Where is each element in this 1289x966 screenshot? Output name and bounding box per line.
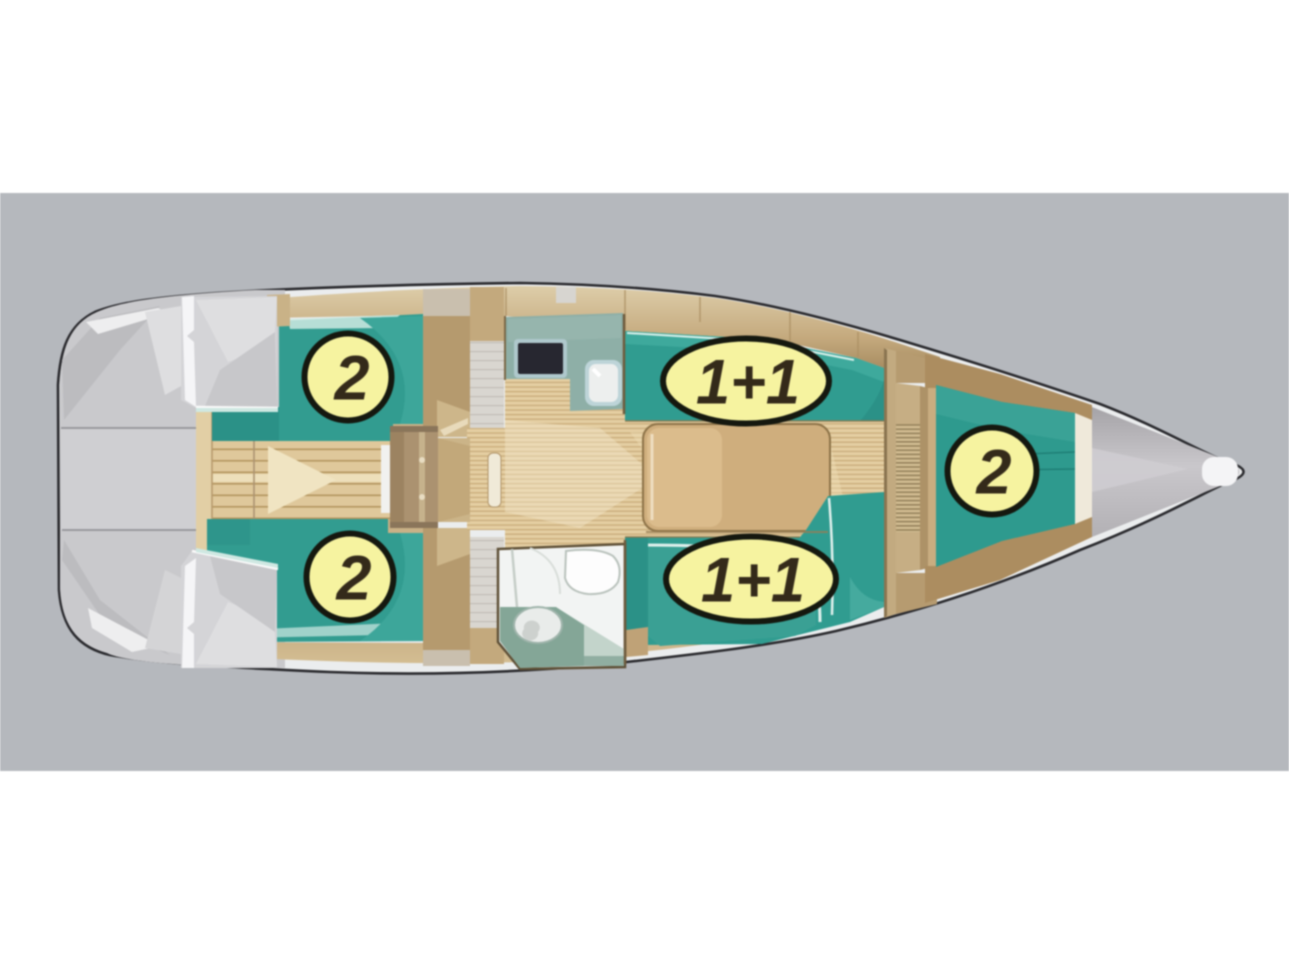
svg-text:2: 2 <box>975 438 1011 508</box>
svg-text:1+1: 1+1 <box>701 546 805 616</box>
svg-text:2: 2 <box>335 544 371 614</box>
svg-text:1+1: 1+1 <box>696 348 800 418</box>
svg-text:2: 2 <box>333 344 369 414</box>
